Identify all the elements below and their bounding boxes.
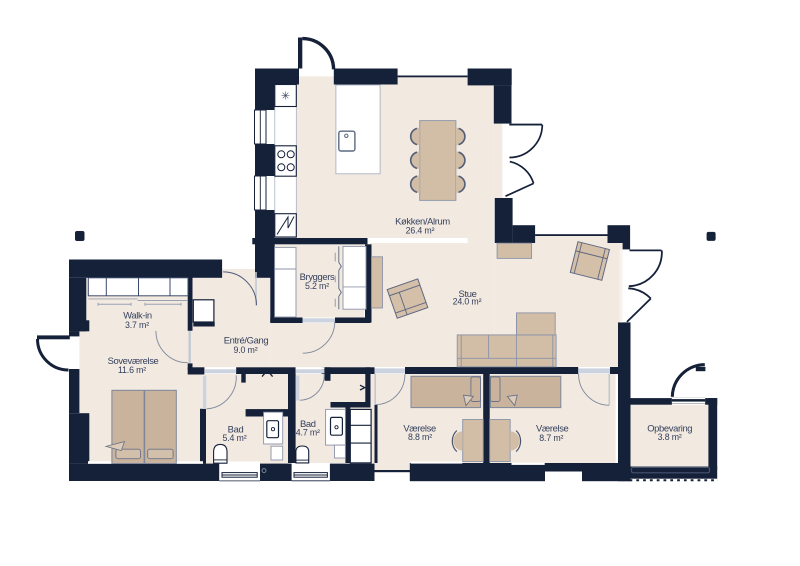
svg-text:Entré/Gang: Entré/Gang	[224, 334, 269, 345]
svg-text:3.7 m²: 3.7 m²	[125, 320, 149, 330]
svg-text:8.7 m²: 8.7 m²	[539, 433, 563, 443]
svg-text:8.8 m²: 8.8 m²	[408, 432, 432, 442]
svg-text:Walk-in: Walk-in	[123, 309, 152, 320]
svg-text:26.4 m²: 26.4 m²	[406, 225, 435, 235]
svg-text:3.8 m²: 3.8 m²	[658, 432, 682, 442]
svg-text:5.4 m²: 5.4 m²	[222, 433, 246, 443]
svg-text:9.0 m²: 9.0 m²	[233, 345, 257, 355]
svg-text:5.2 m²: 5.2 m²	[305, 281, 329, 291]
svg-text:✳: ✳	[281, 91, 290, 103]
svg-text:4.7 m²: 4.7 m²	[296, 428, 320, 438]
svg-text:Værelse: Værelse	[536, 423, 569, 434]
svg-text:11.6 m²: 11.6 m²	[118, 365, 146, 375]
svg-text:24.0 m²: 24.0 m²	[453, 296, 482, 306]
